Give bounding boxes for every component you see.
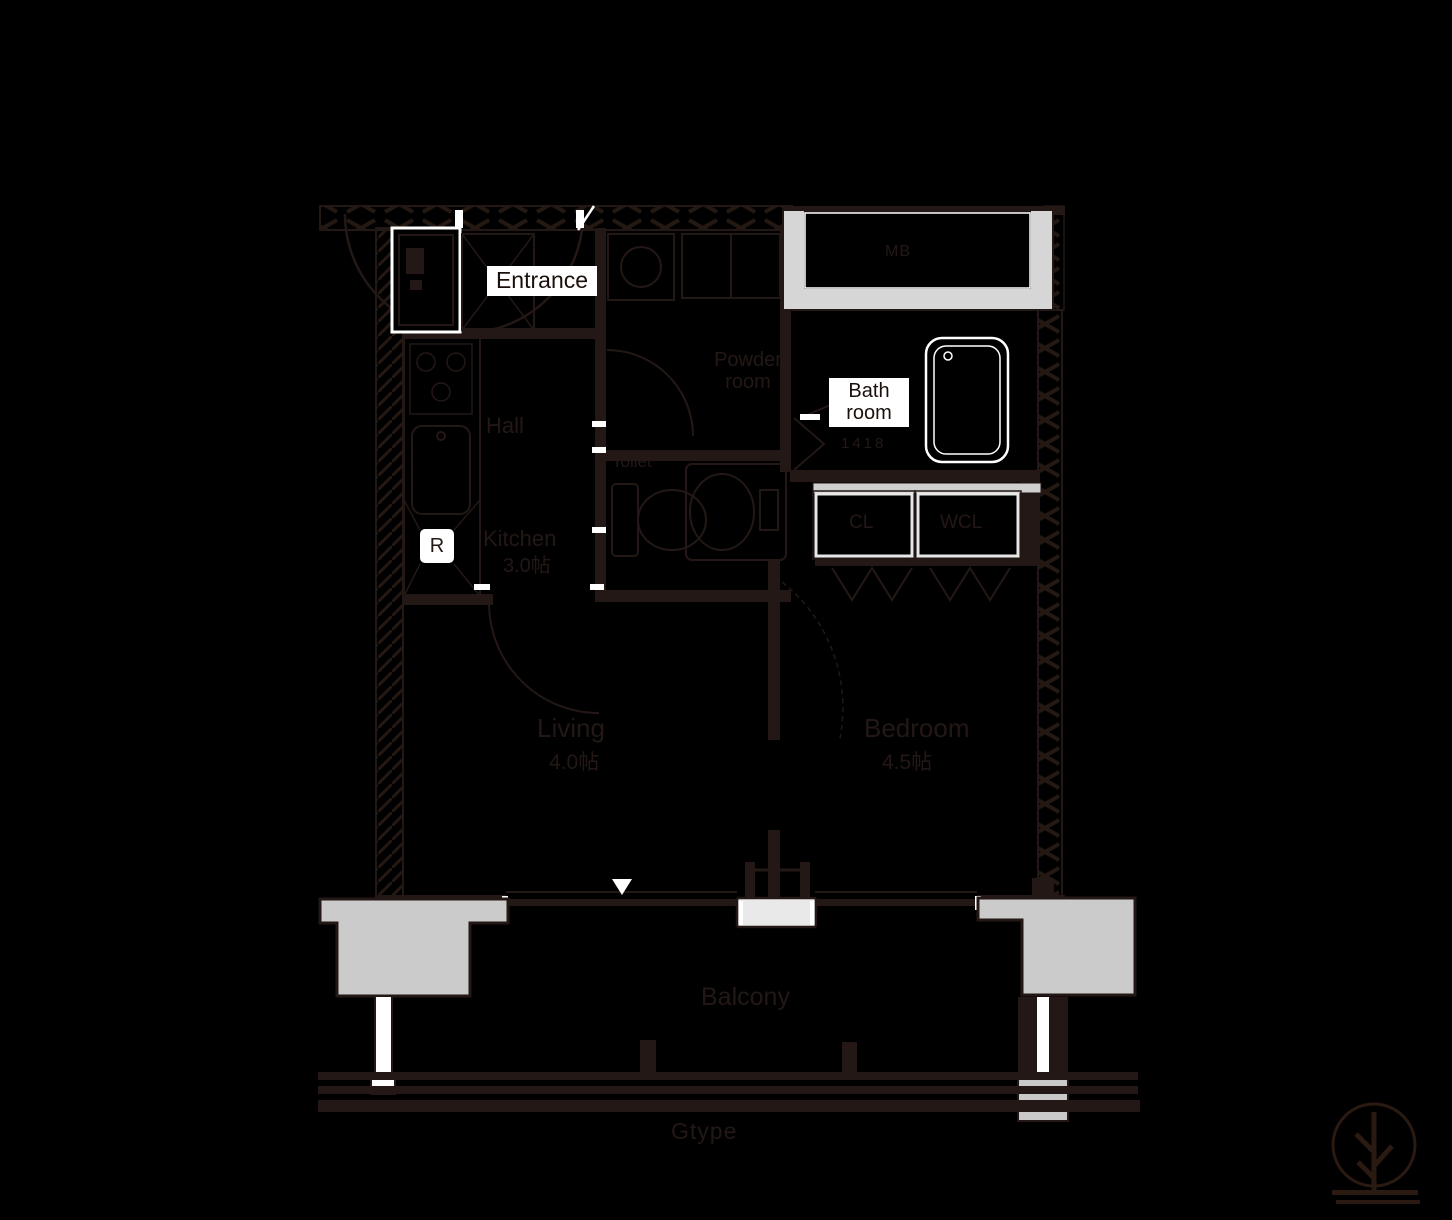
bathtub	[926, 338, 1008, 462]
bedroom-door-arc	[782, 582, 843, 738]
floor-plan-drawing	[0, 0, 1452, 1220]
kitchen-label: Kitchen	[483, 527, 556, 552]
meter-box-label: MB	[885, 243, 911, 261]
powder-door-arc	[607, 350, 693, 436]
living-label: Living	[537, 714, 605, 743]
bedroom-size-label: 4.5帖	[882, 751, 932, 775]
toilet-fixture	[612, 484, 706, 556]
powder-room-line1: Powder	[714, 349, 782, 371]
bedroom-label: Bedroom	[864, 714, 970, 743]
balcony-step	[737, 898, 816, 927]
interior-walls	[403, 228, 1054, 900]
powder-cabinet	[682, 234, 780, 298]
washer-pan	[608, 234, 674, 300]
tree-logo	[1332, 1104, 1420, 1204]
powder-room-label: Powderroom	[700, 349, 796, 394]
bathroom-label: Bathroom	[829, 378, 909, 427]
living-size-label: 4.0帖	[549, 751, 599, 775]
balcony-label: Balcony	[701, 983, 790, 1011]
wash-basin	[686, 464, 786, 560]
refrigerator-symbol: R	[420, 529, 454, 563]
toilet-label: Toilet	[612, 452, 652, 471]
bath-folding-door	[794, 418, 824, 470]
closet-label: CL	[849, 512, 873, 533]
shoe-cabinet	[392, 228, 460, 332]
kitchen-size-label: 3.0帖	[503, 555, 551, 577]
hall-label: Hall	[486, 414, 524, 439]
closets	[813, 483, 1041, 600]
walkin-closet-label: WCL	[940, 512, 982, 533]
bath-size-label: 1418	[841, 436, 886, 453]
plan-type-label: Gtype	[671, 1119, 737, 1145]
powder-room-line2: room	[725, 371, 771, 393]
bathroom-label-line1: Bath	[848, 380, 889, 402]
bathroom-label-line2: room	[846, 402, 892, 424]
entrance-label: Entrance	[487, 266, 597, 296]
floor-plan-stage: Entrance Bathroom 1418 Powderroom Hall K…	[0, 0, 1452, 1220]
meter-box-bay	[783, 210, 1053, 310]
hall-door-arc	[489, 603, 599, 713]
